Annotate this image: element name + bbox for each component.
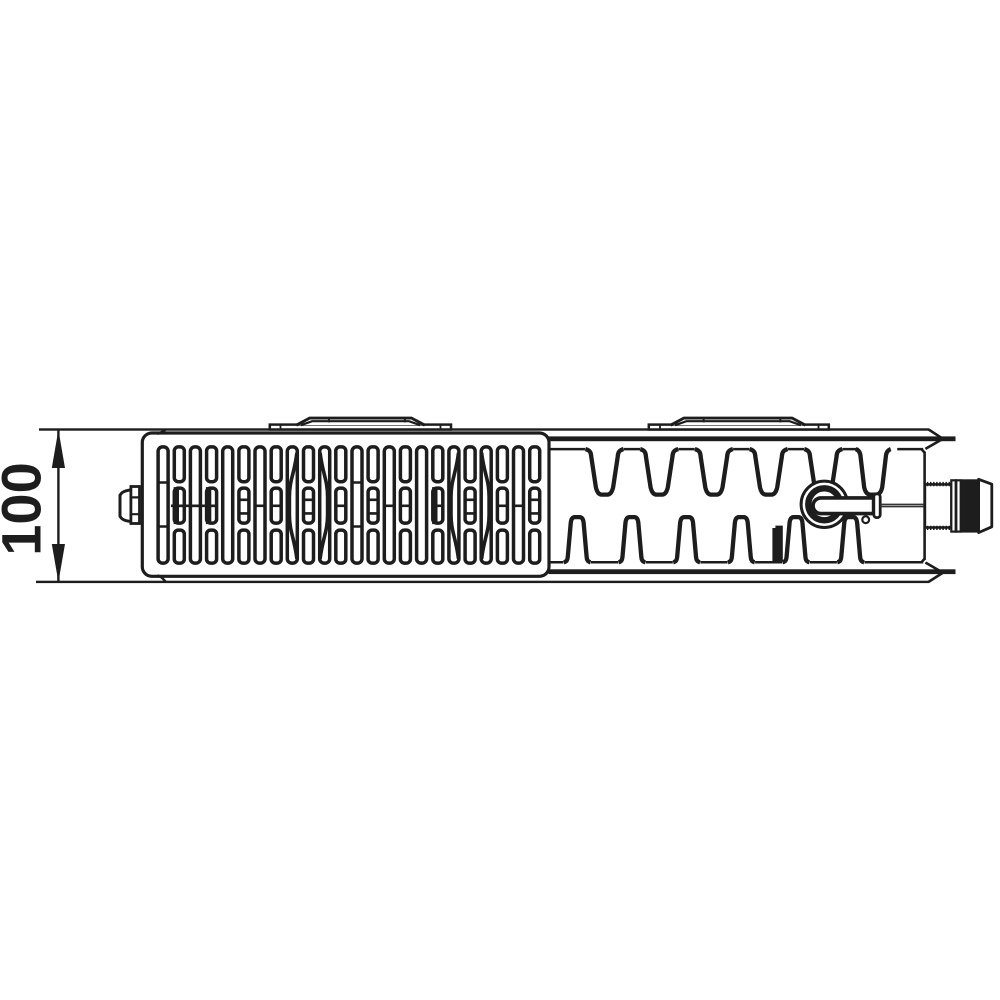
svg-text:100: 100 (0, 462, 53, 555)
